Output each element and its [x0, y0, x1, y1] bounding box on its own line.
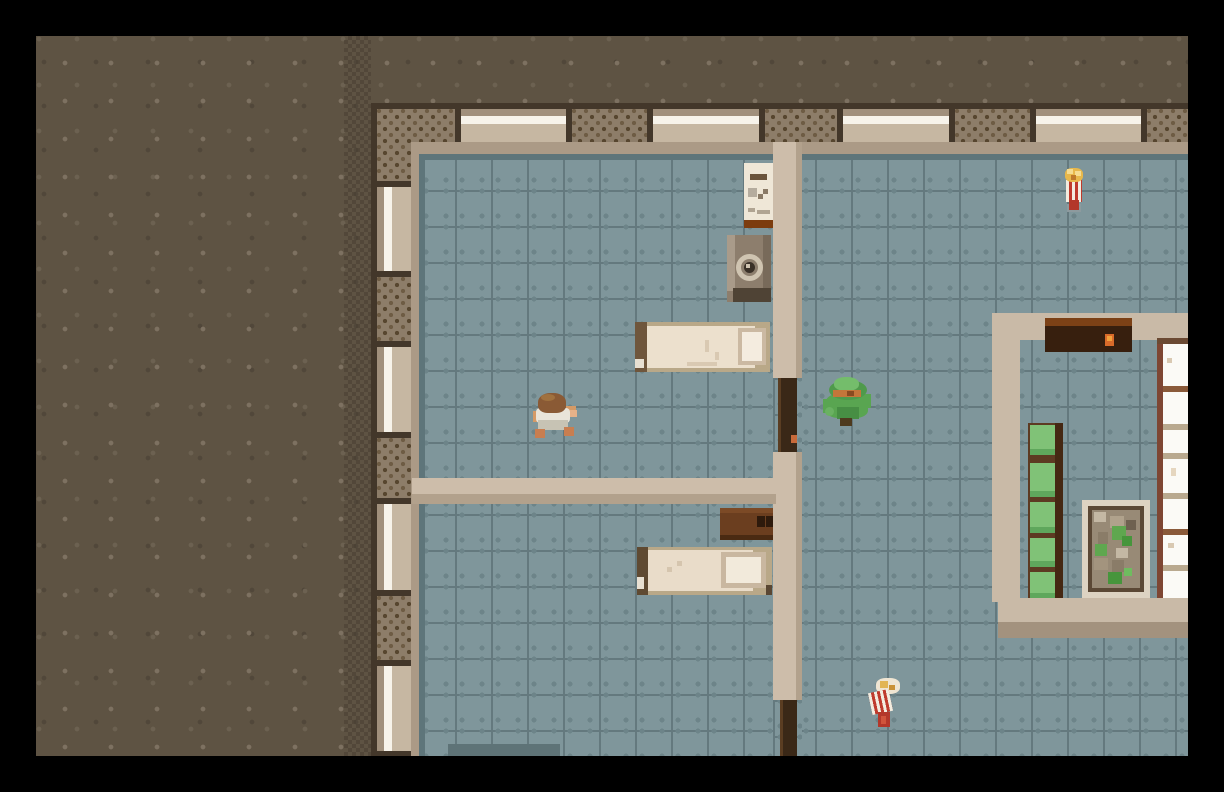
- noticeboard[interactable]: [744, 163, 773, 228]
- shelf-speck: [1168, 543, 1174, 548]
- stone: [1098, 532, 1108, 544]
- door-handle: [791, 435, 797, 443]
- stockroom-wall-bottom: [998, 598, 1188, 622]
- stone-planter[interactable]: [1082, 500, 1150, 598]
- dresser-handle: [766, 516, 773, 527]
- board-line: [757, 210, 770, 214]
- wall-segment: [377, 109, 411, 181]
- player-foot-right: [564, 427, 574, 436]
- game-viewport: [0, 0, 1224, 792]
- wall-inner-ledge-left: [411, 142, 419, 756]
- wall-segment: [377, 438, 411, 498]
- counter-top-edge: [1045, 318, 1132, 326]
- bed-wrinkle: [687, 362, 717, 366]
- white-shelf[interactable]: [1157, 338, 1188, 598]
- window: [377, 187, 411, 271]
- counter[interactable]: [1045, 318, 1132, 352]
- burner-flame-core: [1107, 336, 1112, 341]
- washer-side-light: [727, 235, 735, 291]
- popcorn-box-upright[interactable]: [1063, 167, 1087, 213]
- stockroom-wall-left: [992, 313, 1020, 602]
- bottom-edge-object: [448, 744, 560, 756]
- bed-wrinkle: [705, 340, 709, 352]
- bed-leg: [766, 585, 772, 595]
- stone: [1094, 558, 1108, 570]
- board-mark: [758, 194, 763, 199]
- popcorn-box-base: [1069, 200, 1079, 210]
- shelf-divider: [1163, 493, 1188, 499]
- board-title-bar: [750, 174, 767, 180]
- popcorn-kernel: [1067, 169, 1073, 174]
- shelf-divider: [1163, 565, 1188, 571]
- shelf-divider: [1163, 424, 1188, 430]
- window: [377, 504, 411, 590]
- shelf-cell: [1030, 502, 1055, 533]
- shelf-cell: [1030, 538, 1055, 567]
- dirt-shade-band: [344, 36, 371, 756]
- board-base: [744, 220, 773, 228]
- board-mark: [763, 189, 768, 194]
- shelf-divider: [1163, 529, 1188, 535]
- bed-wrinkle: [677, 561, 682, 566]
- dresser[interactable]: [720, 508, 773, 540]
- shelf-top-edge: [1157, 338, 1188, 344]
- figure-fist: [825, 407, 834, 416]
- popcorn-kernel-dark: [889, 685, 895, 690]
- plant: [1108, 572, 1122, 584]
- washer-door-glint: [746, 264, 750, 268]
- stone: [1116, 548, 1128, 558]
- green-figure[interactable]: [823, 377, 872, 428]
- door-open-lower[interactable]: [780, 700, 797, 756]
- washer-base: [733, 288, 771, 302]
- wall-segment: [1147, 109, 1188, 142]
- stone: [1094, 512, 1106, 522]
- plant: [1095, 544, 1107, 556]
- shelf-cell: [1030, 572, 1055, 598]
- shelf-cell: [1030, 463, 1055, 497]
- floor-shadow-top: [419, 154, 1188, 160]
- popcorn-kernel-dark: [1071, 175, 1076, 180]
- window: [461, 109, 566, 142]
- stone: [1126, 520, 1136, 530]
- figure-shoe: [840, 418, 852, 426]
- wall-segment: [955, 109, 1030, 142]
- wall-segment: [377, 596, 411, 660]
- popcorn-kernel: [880, 681, 888, 688]
- plant: [1122, 536, 1132, 546]
- player-hair-highlight: [541, 394, 555, 401]
- shelf-speck: [1171, 468, 1176, 476]
- bed-sheet-corner: [637, 577, 644, 589]
- dresser-shadow: [720, 535, 773, 540]
- door-open-upper[interactable]: [778, 378, 797, 452]
- interior-wall-horizontal: [412, 478, 776, 504]
- bed-lower[interactable]: [637, 547, 772, 595]
- shelf-speck: [1167, 358, 1172, 363]
- green-shelf[interactable]: [1028, 423, 1063, 598]
- player-hand-right: [570, 410, 577, 417]
- shelf-frame-left: [1157, 338, 1163, 598]
- window: [377, 347, 411, 432]
- bed-sheet-corner: [635, 359, 644, 368]
- figure-hat-band-shade: [847, 391, 854, 396]
- wall-segment: [765, 109, 837, 142]
- figure-arm-right: [862, 394, 871, 408]
- figure-hat-crown: [834, 377, 859, 391]
- bed-upper[interactable]: [635, 322, 770, 372]
- stone: [1112, 560, 1124, 572]
- board-line: [748, 208, 755, 212]
- player-character[interactable]: [533, 393, 578, 442]
- shelf-divider: [1163, 386, 1188, 392]
- dresser-handle: [757, 516, 765, 527]
- popcorn-spill-light: [881, 716, 886, 724]
- window: [843, 109, 949, 142]
- bed-pillow-face: [726, 557, 761, 583]
- plant: [1124, 568, 1132, 576]
- wall-segment: [572, 109, 647, 142]
- stockroom-wall-bottom-shade: [998, 622, 1188, 638]
- wall-post: [377, 751, 411, 756]
- washing-machine[interactable]: [727, 235, 771, 302]
- window: [653, 109, 759, 142]
- shelf-divider: [1163, 453, 1188, 459]
- bed-wrinkle: [715, 352, 719, 360]
- popcorn-box-stripes: [1066, 180, 1082, 202]
- bed-pillow-face: [742, 332, 762, 361]
- popcorn-box-spilled[interactable]: [868, 678, 902, 728]
- board-note: [748, 188, 757, 197]
- bed-wrinkle: [667, 567, 672, 572]
- wall-segment: [377, 277, 411, 341]
- washer-side-shade: [763, 235, 771, 291]
- player-foot-left: [535, 429, 545, 438]
- shelf-frame-right: [1055, 423, 1063, 598]
- tile-floor[interactable]: [419, 154, 1188, 756]
- shelf-cell: [1030, 425, 1055, 455]
- floor-shadow-left: [419, 160, 425, 756]
- window: [377, 666, 411, 751]
- dresser-top-edge: [720, 508, 773, 513]
- window: [1036, 109, 1141, 142]
